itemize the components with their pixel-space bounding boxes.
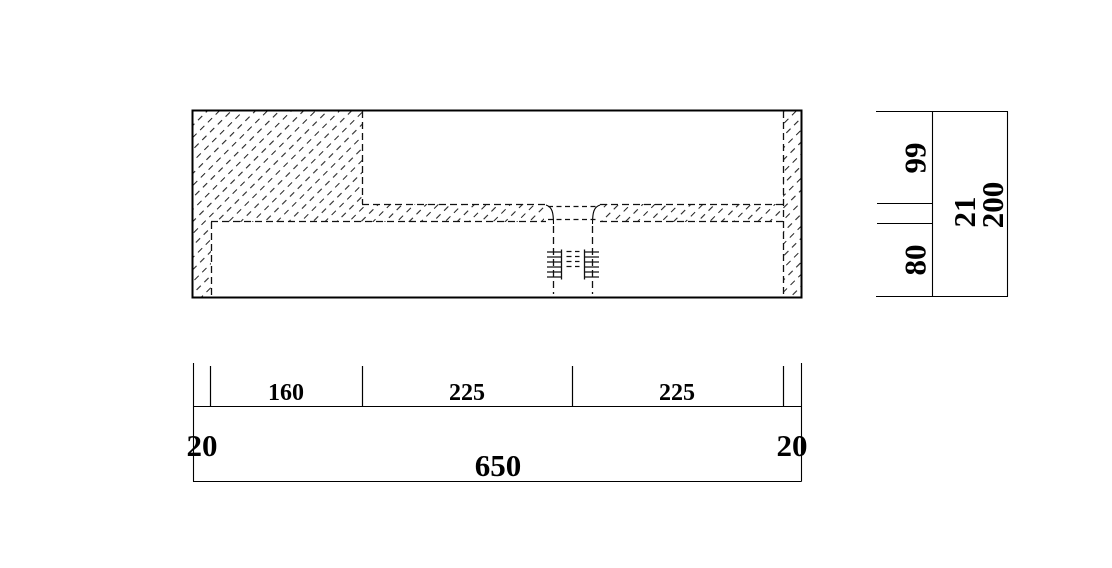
- drawing-sheet: 160 225 225 20 20 650 99 21 80 200: [0, 0, 1112, 568]
- technical-drawing-canvas: 160 225 225 20 20 650 99 21 80 200: [0, 0, 1112, 568]
- dim-label-225b: 225: [659, 380, 695, 406]
- dim-label-20-left: 20: [187, 428, 218, 463]
- front-section-view: [193, 111, 803, 298]
- dim-label-200: 200: [975, 182, 1010, 229]
- dim-label-20-right: 20: [777, 428, 808, 463]
- bottom-dimension-chain: 160 225 225 20 20 650: [187, 363, 808, 483]
- insert-axis-dashes: [567, 252, 580, 267]
- dim-label-80: 80: [898, 245, 933, 276]
- hatch-top-left-block: [193, 111, 362, 222]
- insert-thread-ticks-left: [547, 250, 562, 280]
- hatch-left-strip: [193, 222, 211, 297]
- dim-label-99: 99: [898, 143, 933, 174]
- insert-thread-ticks-right: [585, 250, 600, 280]
- hatch-right-strip: [783, 111, 802, 297]
- dim-label-650: 650: [475, 448, 522, 483]
- height-dimension-chain: 99 21 80 200: [876, 112, 1010, 297]
- dim-label-160: 160: [268, 380, 304, 406]
- dim-label-225a: 225: [449, 380, 485, 406]
